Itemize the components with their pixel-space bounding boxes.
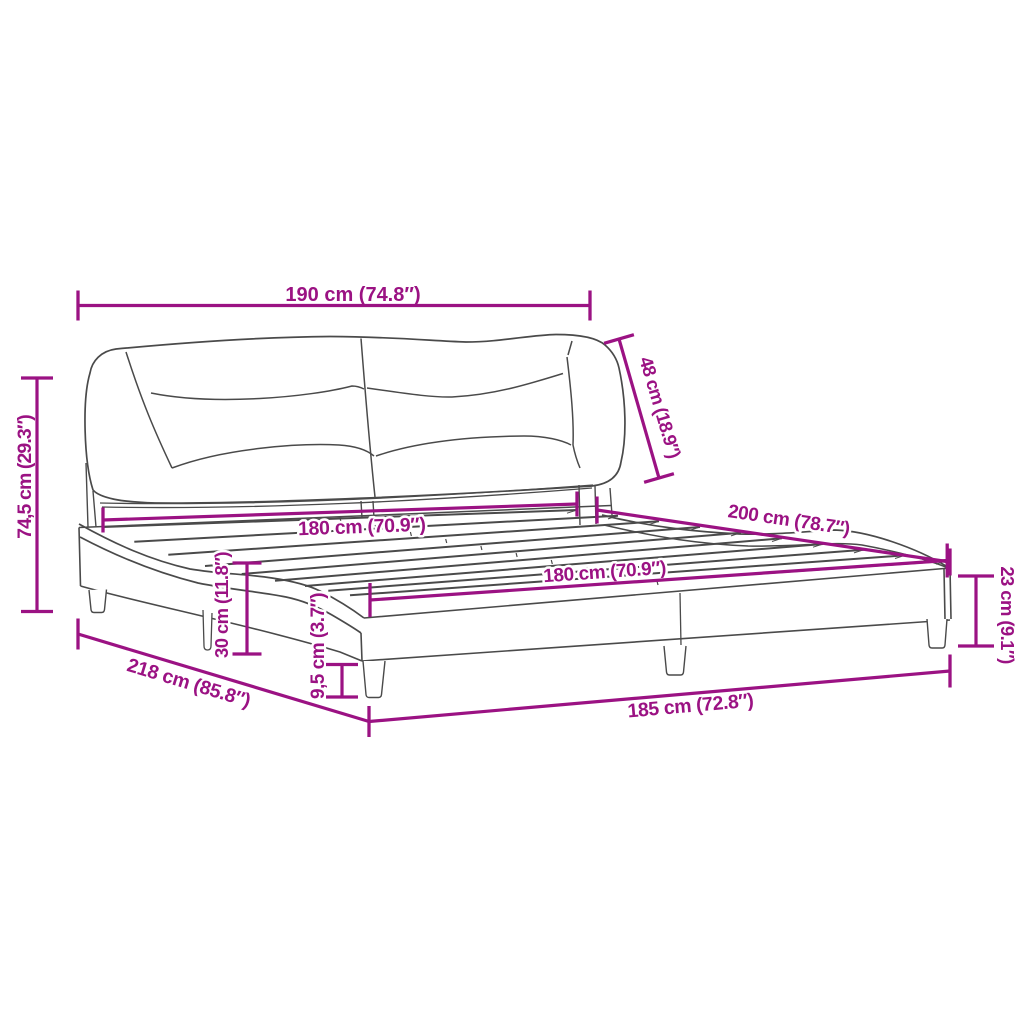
svg-text:30 cm (11.8″): 30 cm (11.8″) <box>211 552 232 658</box>
svg-text:9,5 cm (3.7″): 9,5 cm (3.7″) <box>308 593 329 699</box>
svg-text:190 cm (74.8″): 190 cm (74.8″) <box>285 284 420 306</box>
svg-text:74,5 cm (29.3″): 74,5 cm (29.3″) <box>14 415 36 539</box>
svg-text:23 cm (9.1″): 23 cm (9.1″) <box>997 566 1018 664</box>
svg-text:180 cm (70.9″): 180 cm (70.9″) <box>298 514 426 540</box>
